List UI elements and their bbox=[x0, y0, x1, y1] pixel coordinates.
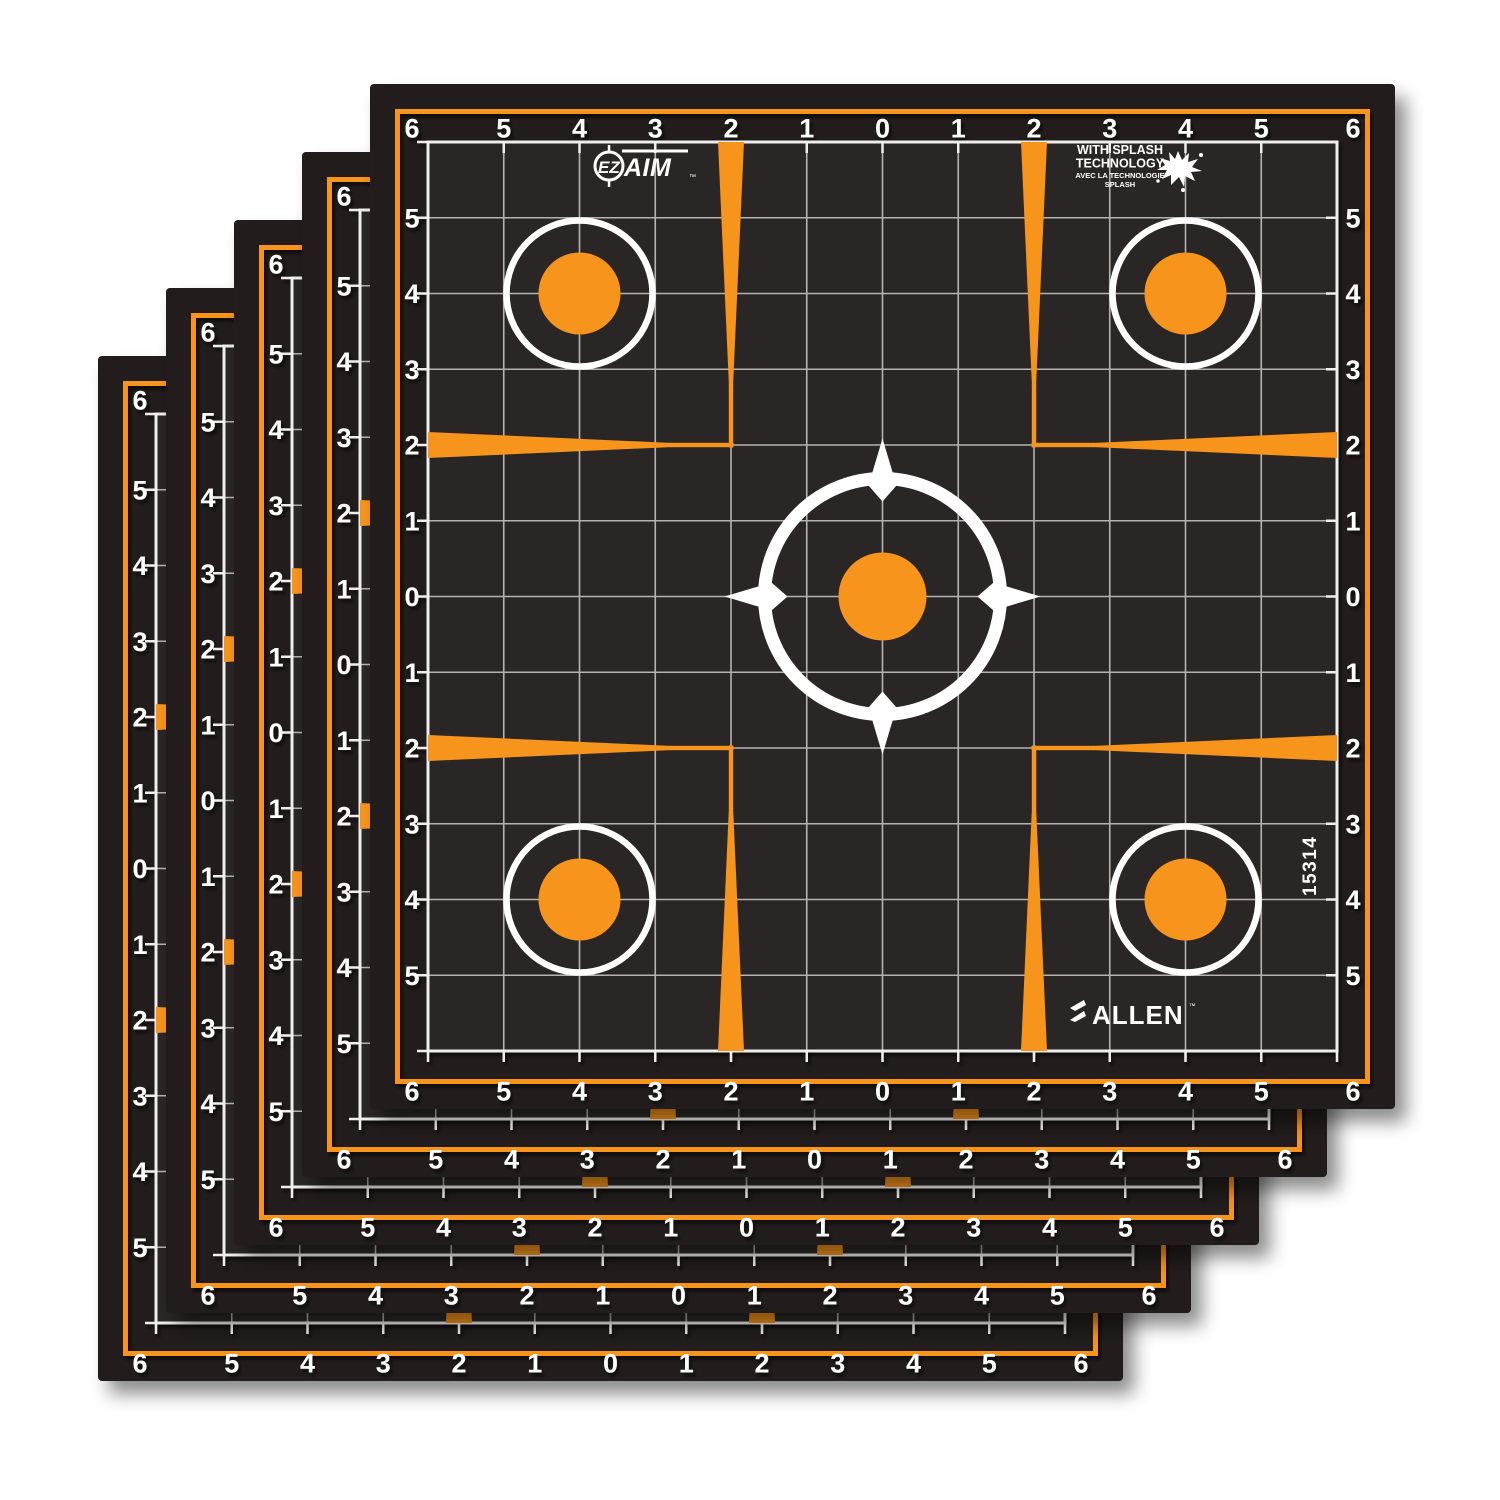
ruler-number: 1 bbox=[595, 1281, 610, 1311]
ruler-number: 5 bbox=[200, 407, 215, 437]
tick-mark bbox=[1326, 292, 1337, 295]
ruler-number: 5 bbox=[224, 1349, 239, 1379]
tick-mark bbox=[1200, 1187, 1203, 1198]
ruler-number: 4 bbox=[1345, 279, 1360, 309]
tick-mark bbox=[889, 1119, 892, 1130]
crosshair-tick bbox=[608, 179, 611, 187]
ruler-number: 5 bbox=[496, 114, 511, 144]
ruler-number: 1 bbox=[951, 1077, 966, 1107]
center-bull-dot bbox=[839, 553, 927, 641]
tick-mark bbox=[1336, 1051, 1339, 1062]
tick-mark bbox=[745, 1187, 748, 1198]
tick-mark bbox=[980, 1255, 983, 1266]
corner-bull-dot bbox=[539, 253, 621, 335]
ruler-number: 4 bbox=[1178, 1077, 1193, 1107]
ruler-number: 2 bbox=[587, 1213, 602, 1243]
ruler-number: 5 bbox=[292, 1281, 307, 1311]
ruler-number: 4 bbox=[368, 1281, 383, 1311]
tick-mark bbox=[1124, 1187, 1127, 1198]
target-sheet-1: 5555444433332222111100001111222233334444… bbox=[370, 84, 1395, 1109]
ruler-number: 2 bbox=[404, 431, 419, 461]
tick-mark bbox=[988, 1323, 991, 1334]
ruler-number: 1 bbox=[731, 1145, 746, 1175]
ruler-number: 3 bbox=[376, 1349, 391, 1379]
ruler-number: 4 bbox=[1178, 114, 1193, 144]
ruler-number: 6 bbox=[132, 1349, 147, 1379]
ruler-number: 2 bbox=[1345, 431, 1360, 461]
tick-mark bbox=[1326, 823, 1337, 826]
wedge-line bbox=[670, 746, 734, 750]
tick-mark bbox=[957, 1051, 960, 1062]
ruler-number: 3 bbox=[580, 1145, 595, 1175]
logo-trademark: ™ bbox=[689, 174, 696, 181]
tick-mark bbox=[435, 1119, 438, 1130]
ruler-number: 5 bbox=[1254, 114, 1269, 144]
ruler-number: 4 bbox=[268, 415, 283, 445]
ruler-number: 6 bbox=[336, 182, 351, 212]
ruler-number: 3 bbox=[648, 114, 663, 144]
wedge-line bbox=[729, 746, 733, 810]
corner-bull-dot bbox=[1145, 859, 1227, 941]
tick-mark bbox=[1326, 520, 1337, 523]
ruler-number: 5 bbox=[132, 1233, 147, 1263]
ruler-number: 4 bbox=[1110, 1145, 1125, 1175]
ruler-number: 5 bbox=[1345, 961, 1360, 991]
ruler-number: 5 bbox=[1050, 1281, 1065, 1311]
tick-mark bbox=[359, 1119, 362, 1130]
tick-mark bbox=[1184, 1051, 1187, 1062]
tagline-line2: TECHNOLOGY bbox=[1076, 157, 1165, 171]
ruler-number: 1 bbox=[1345, 506, 1360, 536]
ruler-number: 2 bbox=[451, 1349, 466, 1379]
tick-mark bbox=[1192, 1119, 1195, 1130]
ruler-number: 2 bbox=[1026, 114, 1041, 144]
ruler-number: 2 bbox=[200, 635, 215, 665]
tick-mark bbox=[685, 1323, 688, 1334]
tick-mark bbox=[1326, 217, 1337, 220]
ruler-number: 4 bbox=[268, 1021, 283, 1051]
tick-mark bbox=[594, 1187, 597, 1198]
ruler-number: 1 bbox=[951, 114, 966, 144]
ruler-number: 6 bbox=[404, 1077, 419, 1107]
splat-droplet bbox=[1199, 153, 1203, 157]
tick-mark bbox=[291, 1187, 294, 1198]
ruler-number: 3 bbox=[404, 809, 419, 839]
tick-mark bbox=[427, 1051, 430, 1062]
tick-mark bbox=[578, 142, 581, 153]
tick-mark bbox=[753, 1255, 756, 1266]
ruler-number: 0 bbox=[671, 1281, 686, 1311]
ruler-number: 5 bbox=[404, 203, 419, 233]
ruler-number: 2 bbox=[1345, 734, 1360, 764]
ruler-number: 0 bbox=[875, 1077, 890, 1107]
tick-mark bbox=[905, 1255, 908, 1266]
ruler-number: 2 bbox=[268, 870, 283, 900]
ruler-number: 2 bbox=[723, 114, 738, 144]
ruler-number: 4 bbox=[572, 1077, 587, 1107]
ruler-number: 4 bbox=[906, 1349, 921, 1379]
ruler-number: 0 bbox=[132, 854, 147, 884]
tick-mark bbox=[957, 142, 960, 153]
ruler-number: 4 bbox=[200, 483, 215, 513]
tick-mark bbox=[281, 1186, 292, 1189]
tick-mark bbox=[526, 1255, 529, 1266]
ruler-number: 6 bbox=[1209, 1213, 1224, 1243]
tick-mark bbox=[349, 1118, 360, 1121]
product-photo-ezaim-target-stack: 5555444433332222111100001111222233334444… bbox=[0, 0, 1500, 1500]
tick-mark bbox=[829, 1255, 832, 1266]
target-stack-scene: 5555444433332222111100001111222233334444… bbox=[0, 0, 1500, 1500]
tick-mark bbox=[662, 1119, 665, 1130]
ruler-number: 2 bbox=[132, 1006, 147, 1036]
tick-mark bbox=[1326, 595, 1337, 598]
ruler-number: 4 bbox=[1042, 1213, 1057, 1243]
tick-mark bbox=[503, 142, 506, 153]
ruler-number: 3 bbox=[200, 1013, 215, 1043]
tick-mark bbox=[306, 1323, 309, 1334]
ruler-number: 1 bbox=[815, 1213, 830, 1243]
ruler-number: 6 bbox=[404, 114, 419, 144]
ruler-number: 4 bbox=[404, 885, 419, 915]
tick-mark bbox=[450, 1255, 453, 1266]
ruler-number: 0 bbox=[807, 1145, 822, 1175]
ruler-number: 6 bbox=[200, 1281, 215, 1311]
ruler-number: 5 bbox=[428, 1145, 443, 1175]
tick-mark bbox=[1326, 898, 1337, 901]
ruler-number: 6 bbox=[1141, 1281, 1156, 1311]
logo-overline bbox=[622, 150, 688, 153]
tick-mark bbox=[1184, 142, 1187, 153]
tick-mark bbox=[145, 1322, 156, 1325]
ruler-number: 2 bbox=[519, 1281, 534, 1311]
tick-mark bbox=[417, 1050, 428, 1053]
ruler-number: 0 bbox=[200, 786, 215, 816]
ruler-number: 3 bbox=[512, 1213, 527, 1243]
ruler-number: 2 bbox=[723, 1077, 738, 1107]
tick-mark bbox=[223, 1255, 226, 1266]
tick-mark bbox=[534, 1323, 537, 1334]
tick-mark bbox=[586, 1119, 589, 1130]
tick-mark bbox=[738, 1119, 741, 1130]
ruler-number: 2 bbox=[655, 1145, 670, 1175]
sheet-print: 5555444433332222111100001111222233334444… bbox=[398, 112, 1368, 1107]
tick-mark bbox=[503, 1051, 506, 1062]
tick-mark bbox=[677, 1255, 680, 1266]
allen-name: ALLEN bbox=[1092, 1000, 1184, 1030]
logo-ez: EZ bbox=[598, 158, 620, 177]
ruler-number: 5 bbox=[132, 475, 147, 505]
tick-mark bbox=[912, 1323, 915, 1334]
tick-mark bbox=[973, 1187, 976, 1198]
tick-mark bbox=[806, 142, 809, 153]
ruler-number: 1 bbox=[132, 930, 147, 960]
tick-mark bbox=[382, 1323, 385, 1334]
ruler-number: 1 bbox=[404, 506, 419, 536]
ruler-number: 4 bbox=[132, 551, 147, 581]
ruler-number: 3 bbox=[1102, 114, 1117, 144]
ruler-number: 5 bbox=[268, 339, 283, 369]
ruler-number: 4 bbox=[974, 1281, 989, 1311]
ruler-number: 1 bbox=[799, 114, 814, 144]
tagline-line4: SPLASH bbox=[1105, 180, 1135, 189]
wedge-line bbox=[1032, 746, 1096, 750]
ruler-number: 1 bbox=[883, 1145, 898, 1175]
wedge-line bbox=[1032, 384, 1036, 448]
tick-mark bbox=[670, 1187, 673, 1198]
ruler-number: 2 bbox=[1026, 1077, 1041, 1107]
wedge-line bbox=[729, 384, 733, 448]
ruler-number: 4 bbox=[1345, 885, 1360, 915]
ruler-number: 1 bbox=[527, 1349, 542, 1379]
tick-mark bbox=[374, 1255, 377, 1266]
ruler-number: 2 bbox=[132, 703, 147, 733]
ruler-number: 6 bbox=[1277, 1145, 1292, 1175]
tick-mark bbox=[1260, 142, 1263, 153]
tick-mark bbox=[1033, 1051, 1036, 1062]
ruler-number: 5 bbox=[404, 961, 419, 991]
ruler-number: 1 bbox=[336, 574, 351, 604]
tick-mark bbox=[518, 1187, 521, 1198]
tick-mark bbox=[1064, 1323, 1067, 1334]
ruler-number: 2 bbox=[336, 499, 351, 529]
tick-mark bbox=[761, 1323, 764, 1334]
ruler-number: 3 bbox=[898, 1281, 913, 1311]
tick-mark bbox=[231, 1323, 234, 1334]
ruler-number: 3 bbox=[1102, 1077, 1117, 1107]
ruler-number: 6 bbox=[268, 250, 283, 280]
ruler-number: 1 bbox=[799, 1077, 814, 1107]
ruler-number: 5 bbox=[496, 1077, 511, 1107]
ruler-number: 6 bbox=[1073, 1349, 1088, 1379]
ruler-number: 6 bbox=[132, 386, 147, 416]
crosshair-tick bbox=[608, 145, 611, 153]
tick-mark bbox=[1116, 1119, 1119, 1130]
tick-mark bbox=[458, 1323, 461, 1334]
tick-mark bbox=[367, 1187, 370, 1198]
ruler-number: 5 bbox=[336, 1029, 351, 1059]
ruler-number: 4 bbox=[504, 1145, 519, 1175]
ruler-number: 5 bbox=[982, 1349, 997, 1379]
tick-mark bbox=[730, 1051, 733, 1062]
ruler-number: 1 bbox=[404, 658, 419, 688]
ruler-number: 4 bbox=[200, 1089, 215, 1119]
tick-mark bbox=[1109, 1051, 1112, 1062]
tick-mark bbox=[213, 1254, 224, 1257]
ruler-number: 0 bbox=[739, 1213, 754, 1243]
ruler-number: 5 bbox=[1345, 203, 1360, 233]
ruler-number: 0 bbox=[603, 1349, 618, 1379]
ruler-number: 5 bbox=[360, 1213, 375, 1243]
tick-mark bbox=[897, 1187, 900, 1198]
ruler-number: 4 bbox=[436, 1213, 451, 1243]
ruler-number: 3 bbox=[1345, 355, 1360, 385]
ruler-number: 3 bbox=[132, 627, 147, 657]
tick-mark bbox=[821, 1187, 824, 1198]
ruler-number: 0 bbox=[268, 718, 283, 748]
ruler-number: 1 bbox=[747, 1281, 762, 1311]
ruler-number: 4 bbox=[336, 953, 351, 983]
tick-mark bbox=[1048, 1187, 1051, 1198]
ruler-number: 3 bbox=[1034, 1145, 1049, 1175]
ruler-number: 2 bbox=[890, 1213, 905, 1243]
ruler-number: 2 bbox=[268, 567, 283, 597]
tick-mark bbox=[609, 1323, 612, 1334]
ruler-number: 3 bbox=[268, 945, 283, 975]
tick-mark bbox=[442, 1187, 445, 1198]
corner-bull-dot bbox=[539, 859, 621, 941]
tagline-line3: AVEC LA TECHNOLOGIE bbox=[1075, 171, 1164, 180]
ruler-number: 3 bbox=[200, 559, 215, 589]
tick-mark bbox=[578, 1051, 581, 1062]
ruler-number: 4 bbox=[404, 279, 419, 309]
ruler-number: 3 bbox=[648, 1077, 663, 1107]
ruler-number: 2 bbox=[822, 1281, 837, 1311]
ruler-number: 6 bbox=[1345, 114, 1360, 144]
tagline-line1: WITH SPLASH bbox=[1077, 143, 1163, 157]
ruler-number: 3 bbox=[444, 1281, 459, 1311]
tick-mark bbox=[881, 142, 884, 153]
ruler-number: 5 bbox=[1118, 1213, 1133, 1243]
ruler-number: 2 bbox=[404, 734, 419, 764]
ruler-number: 2 bbox=[754, 1349, 769, 1379]
ruler-number: 1 bbox=[268, 794, 283, 824]
ruler-number: 3 bbox=[268, 491, 283, 521]
ruler-number: 6 bbox=[1345, 1077, 1360, 1107]
ruler-number: 1 bbox=[132, 778, 147, 808]
ruler-number: 1 bbox=[1345, 658, 1360, 688]
tick-mark bbox=[1326, 671, 1337, 674]
ruler-number: 1 bbox=[663, 1213, 678, 1243]
ruler-number: 2 bbox=[200, 938, 215, 968]
sku-label: 15314 bbox=[1300, 836, 1321, 896]
ruler-number: 2 bbox=[336, 802, 351, 832]
ruler-number: 6 bbox=[336, 1145, 351, 1175]
ruler-number: 0 bbox=[404, 582, 419, 612]
tick-mark bbox=[602, 1255, 605, 1266]
wedge-line bbox=[1032, 443, 1096, 447]
ruler-number: 5 bbox=[1186, 1145, 1201, 1175]
tick-mark bbox=[1041, 1119, 1044, 1130]
ruler-number: 3 bbox=[966, 1213, 981, 1243]
tick-mark bbox=[806, 1051, 809, 1062]
ruler-number: 5 bbox=[336, 271, 351, 301]
ruler-number: 3 bbox=[336, 877, 351, 907]
tick-mark bbox=[1326, 974, 1337, 977]
ruler-number: 1 bbox=[200, 862, 215, 892]
ruler-number: 4 bbox=[336, 347, 351, 377]
tick-mark bbox=[1260, 1051, 1263, 1062]
ruler-number: 0 bbox=[875, 114, 890, 144]
ruler-number: 6 bbox=[268, 1213, 283, 1243]
ruler-number: 1 bbox=[268, 642, 283, 672]
wedge-line bbox=[670, 443, 734, 447]
wedge-line bbox=[1032, 746, 1036, 810]
ruler-number: 4 bbox=[572, 114, 587, 144]
tick-mark bbox=[1326, 368, 1337, 371]
logo-aim: AIM bbox=[623, 154, 672, 182]
ruler-number: 3 bbox=[132, 1081, 147, 1111]
tick-mark bbox=[813, 1119, 816, 1130]
tick-mark bbox=[1132, 1255, 1135, 1266]
ruler-number: 3 bbox=[336, 423, 351, 453]
ruler-number: 1 bbox=[200, 710, 215, 740]
ruler-number: 0 bbox=[1345, 582, 1360, 612]
ruler-number: 4 bbox=[300, 1349, 315, 1379]
tick-mark bbox=[155, 1323, 158, 1334]
ruler-number: 3 bbox=[1345, 809, 1360, 839]
tick-mark bbox=[837, 1323, 840, 1334]
tick-mark bbox=[881, 1051, 884, 1062]
tick-mark bbox=[510, 1119, 513, 1130]
ruler-number: 5 bbox=[1254, 1077, 1269, 1107]
splat-droplet bbox=[1181, 188, 1185, 192]
tick-mark bbox=[654, 1051, 657, 1062]
ruler-number: 4 bbox=[132, 1157, 147, 1187]
allen-trademark: ™ bbox=[1189, 1003, 1196, 1010]
ruler-number: 5 bbox=[268, 1097, 283, 1127]
corner-bull-dot bbox=[1145, 253, 1227, 335]
tick-mark bbox=[965, 1119, 968, 1130]
tick-mark bbox=[299, 1255, 302, 1266]
tick-mark bbox=[1268, 1119, 1271, 1130]
ruler-number: 3 bbox=[830, 1349, 845, 1379]
ruler-number: 5 bbox=[200, 1165, 215, 1195]
ruler-number: 0 bbox=[336, 650, 351, 680]
ruler-number: 6 bbox=[200, 318, 215, 348]
splat-droplet bbox=[1156, 179, 1159, 182]
ruler-number: 3 bbox=[404, 355, 419, 385]
ruler-number: 1 bbox=[336, 726, 351, 756]
tick-mark bbox=[1056, 1255, 1059, 1266]
ruler-number: 2 bbox=[958, 1145, 973, 1175]
ruler-number: 1 bbox=[679, 1349, 694, 1379]
